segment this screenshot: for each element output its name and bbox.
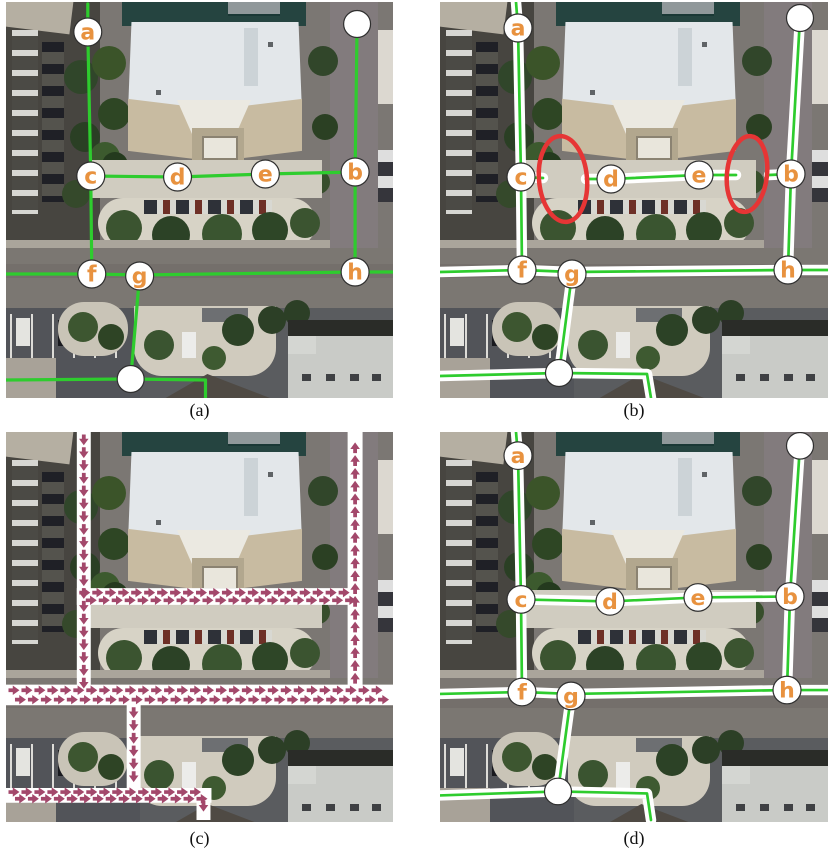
graph-node-label: a (511, 17, 526, 42)
graph-node-label: d (170, 165, 186, 190)
panel-caption-a: (a) (6, 400, 393, 426)
graph-node (117, 366, 144, 393)
graph-node (545, 778, 572, 805)
graph-node-label: e (258, 162, 273, 187)
graph-node-label: g (564, 263, 580, 288)
graph-node-label: b (782, 585, 798, 610)
graph-node-label: f (517, 681, 527, 706)
graph-node-label: c (84, 164, 97, 189)
panel-caption-c: (c) (6, 828, 393, 852)
graph-node-label: a (511, 444, 526, 469)
panel-b-graph-overlay: acdebfgh (440, 2, 828, 398)
graph-node-label: f (87, 262, 97, 287)
panel-c-graph-overlay (6, 432, 393, 822)
graph-node-label: h (780, 259, 796, 284)
panel-d-graph-overlay: acdebfgh (440, 432, 828, 822)
graph-edge (131, 275, 140, 379)
panel-c-image (6, 432, 393, 822)
graph-edge (6, 379, 205, 398)
graph-node-label: g (563, 684, 579, 709)
graph-node (344, 11, 371, 38)
graph-node (787, 5, 814, 32)
graph-edge (6, 272, 393, 275)
graph-node-label: e (692, 164, 707, 189)
graph-node-label: h (347, 260, 363, 285)
graph-node (546, 360, 573, 387)
graph-node-label: f (517, 259, 527, 284)
graph-node-label: b (783, 163, 799, 188)
graph-node-label: c (514, 166, 527, 191)
graph-edge (91, 172, 355, 177)
panel-caption-b: (b) (440, 400, 828, 426)
figure-road-graph-panels: acdebfgh (0, 0, 835, 852)
panel-b-image: acdebfgh (440, 2, 828, 398)
graph-node-label: c (514, 588, 527, 613)
graph-node (787, 432, 814, 459)
graph-edge (355, 24, 357, 272)
graph-node-label: d (602, 590, 618, 615)
graph-node-label: e (691, 586, 706, 611)
graph-edge (91, 176, 92, 274)
panel-a-image: acdebfgh (6, 2, 393, 398)
graph-node-label: h (779, 679, 795, 704)
panel-caption-d: (d) (440, 828, 828, 852)
graph-node-label: a (80, 20, 95, 45)
graph-node-label: d (603, 168, 619, 193)
graph-node-label: b (347, 160, 363, 185)
panel-a-graph-overlay: acdebfgh (6, 2, 393, 398)
graph-node-label: g (132, 264, 148, 289)
panel-d-image: acdebfgh (440, 432, 828, 822)
